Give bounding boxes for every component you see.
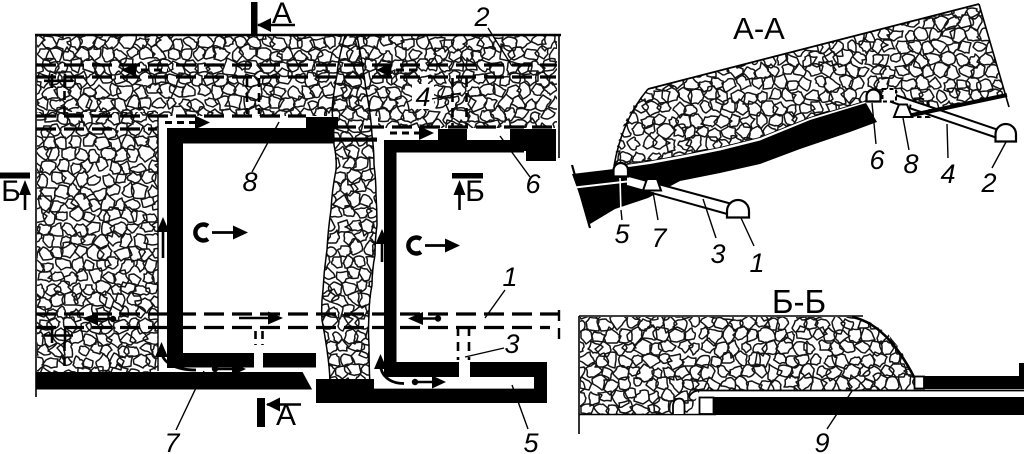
svg-text:7: 7 bbox=[651, 223, 667, 253]
svg-text:2: 2 bbox=[980, 168, 996, 198]
svg-text:7: 7 bbox=[164, 428, 180, 454]
svg-text:9: 9 bbox=[814, 428, 829, 454]
svg-text:2: 2 bbox=[473, 2, 489, 32]
svg-text:5: 5 bbox=[614, 219, 630, 249]
svg-text:1: 1 bbox=[502, 262, 517, 292]
svg-text:1: 1 bbox=[749, 248, 764, 278]
svg-text:8: 8 bbox=[242, 167, 257, 197]
svg-text:4: 4 bbox=[940, 159, 955, 189]
svg-text:А: А bbox=[272, 0, 292, 30]
svg-text:А-А: А-А bbox=[733, 11, 785, 46]
svg-text:3: 3 bbox=[710, 239, 725, 269]
svg-text:А: А bbox=[276, 399, 296, 432]
svg-text:Б: Б bbox=[1, 175, 21, 208]
svg-text:4: 4 bbox=[415, 82, 430, 112]
svg-text:3: 3 bbox=[504, 329, 519, 359]
svg-text:6: 6 bbox=[869, 145, 885, 175]
svg-text:6: 6 bbox=[525, 169, 541, 199]
svg-text:Б: Б bbox=[465, 175, 485, 208]
svg-text:Б-Б: Б-Б bbox=[772, 283, 826, 320]
svg-text:5: 5 bbox=[523, 428, 539, 454]
svg-text:8: 8 bbox=[903, 149, 918, 179]
